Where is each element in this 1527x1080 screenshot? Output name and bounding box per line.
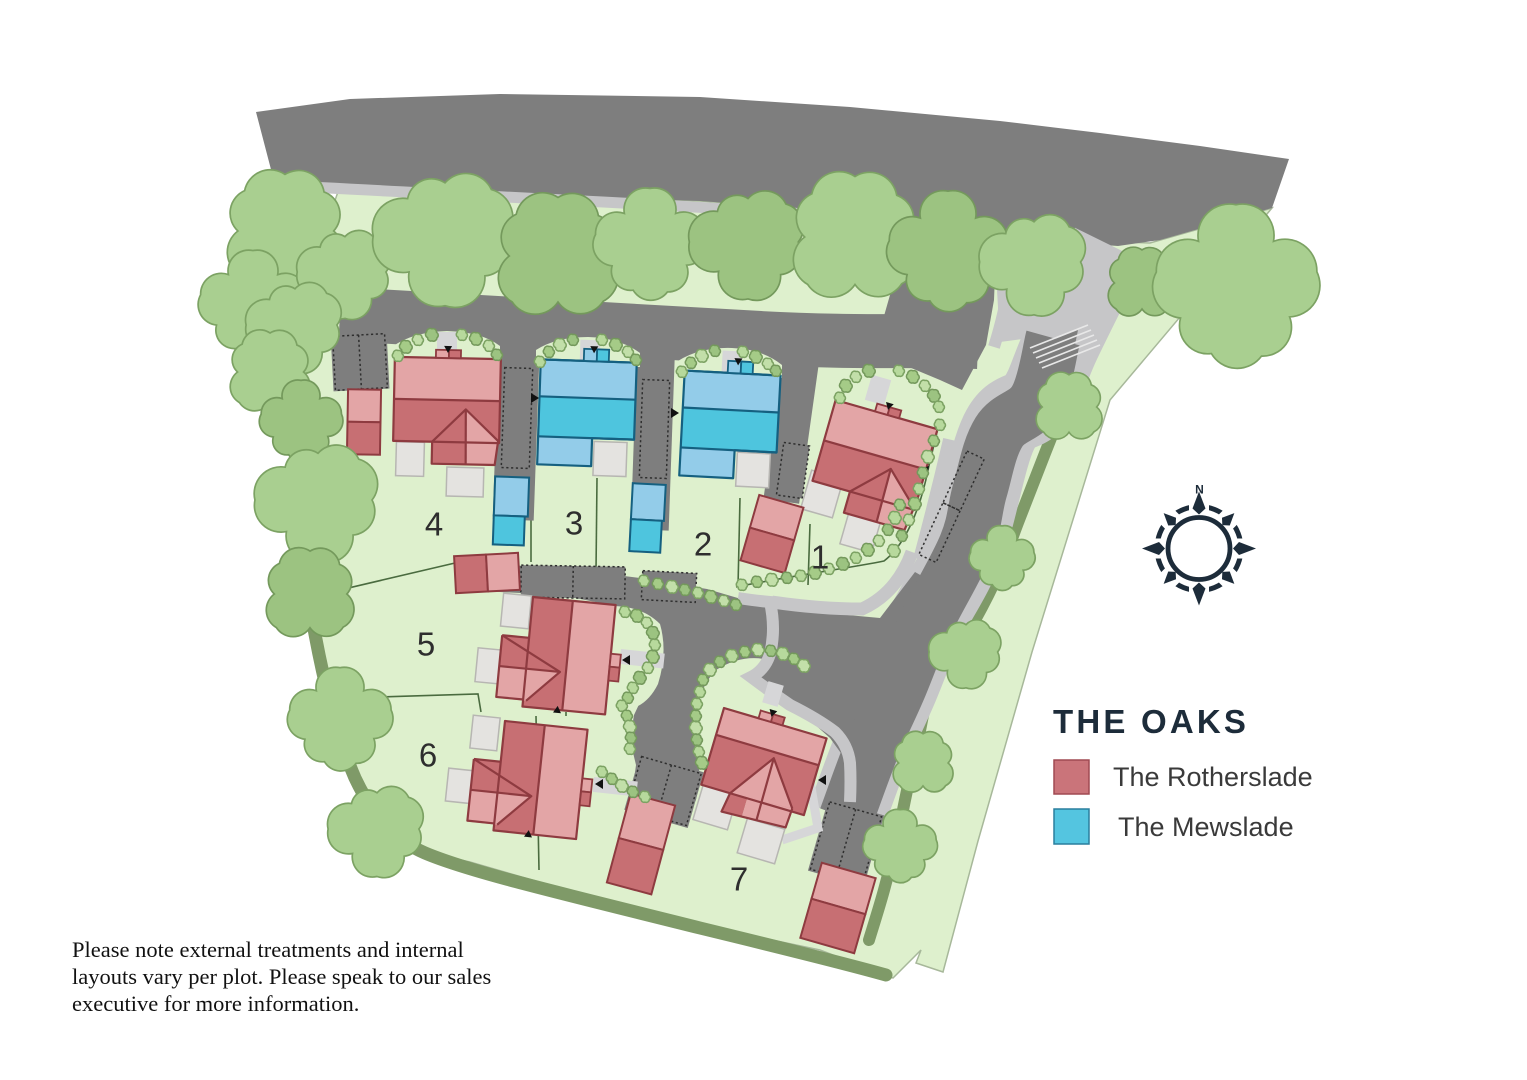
svg-text:layouts vary per plot. Please: layouts vary per plot. Please speak to o… [72,964,491,989]
svg-text:6: 6 [419,737,437,774]
svg-text:1: 1 [811,539,829,576]
svg-text:The Rotherslade: The Rotherslade [1113,762,1313,792]
svg-text:Please note external treatment: Please note external treatments and inte… [72,937,464,962]
svg-text:3: 3 [565,505,583,542]
svg-text:The Mewslade: The Mewslade [1118,812,1294,842]
svg-text:N: N [1195,483,1204,497]
svg-text:executive for more information: executive for more information. [72,991,359,1016]
svg-text:5: 5 [417,626,435,663]
svg-text:7: 7 [730,861,748,898]
svg-text:2: 2 [694,526,712,563]
svg-text:THE OAKS: THE OAKS [1053,703,1249,740]
svg-text:4: 4 [425,506,443,543]
